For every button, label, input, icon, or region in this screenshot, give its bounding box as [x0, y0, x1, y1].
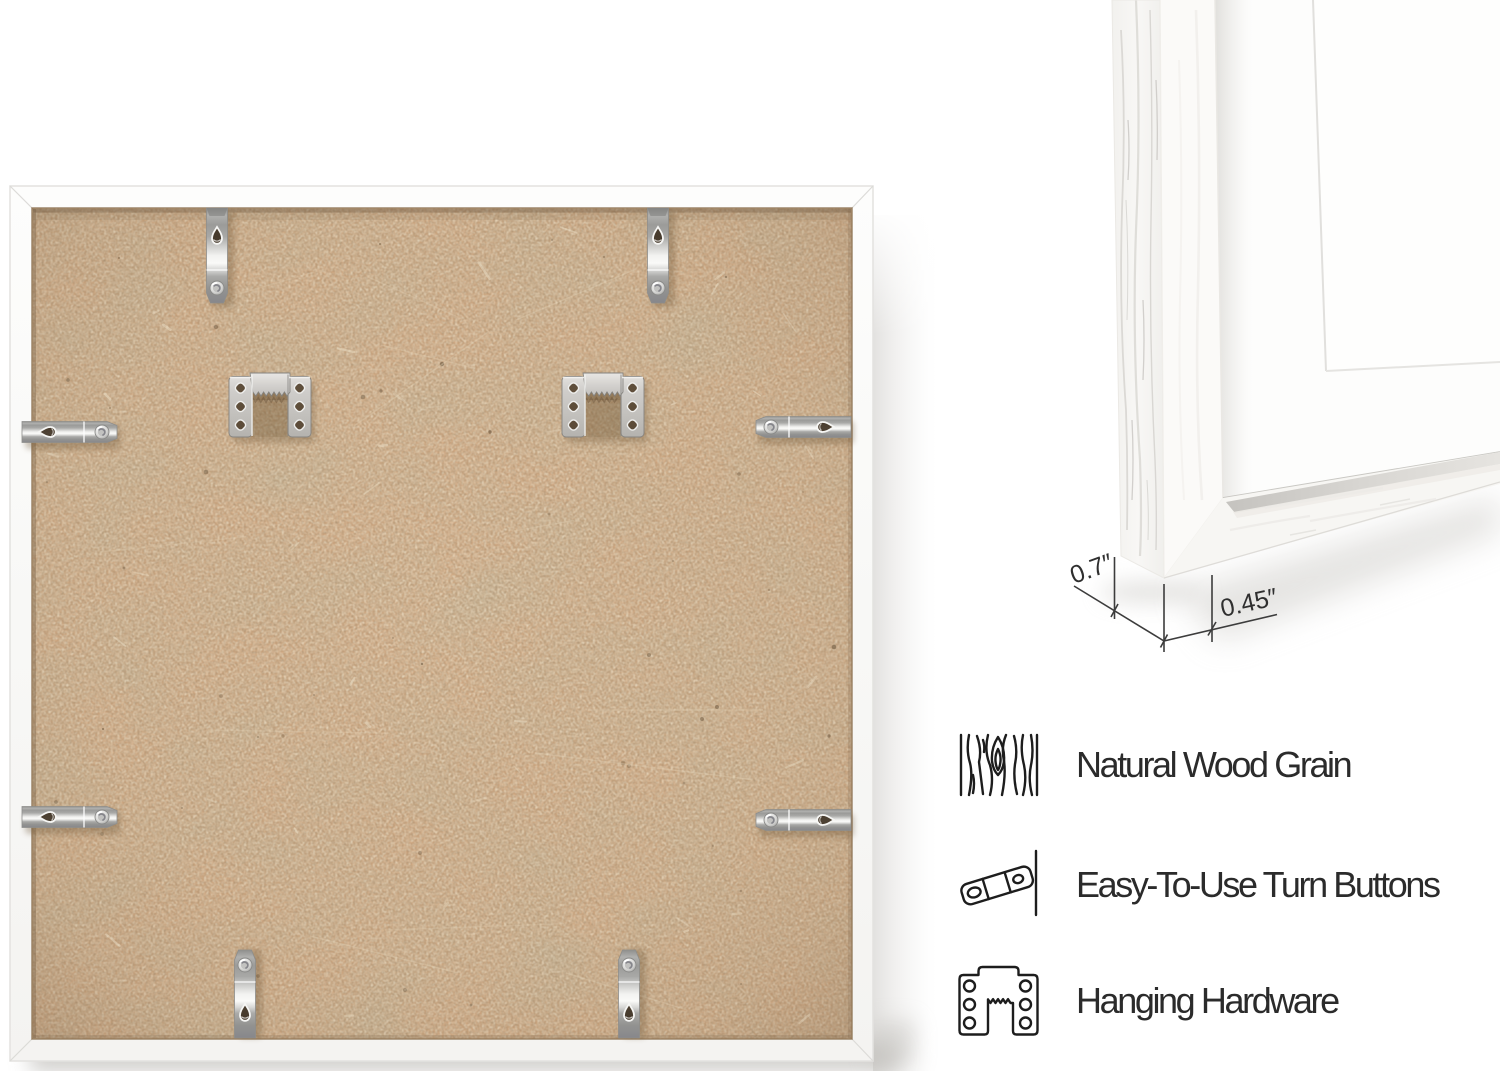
- svg-text:Hanging Hardware: Hanging Hardware: [1076, 980, 1339, 1021]
- svg-text:Natural Wood Grain: Natural Wood Grain: [1076, 744, 1351, 785]
- svg-text:Easy-To-Use Turn Buttons: Easy-To-Use Turn Buttons: [1076, 864, 1440, 905]
